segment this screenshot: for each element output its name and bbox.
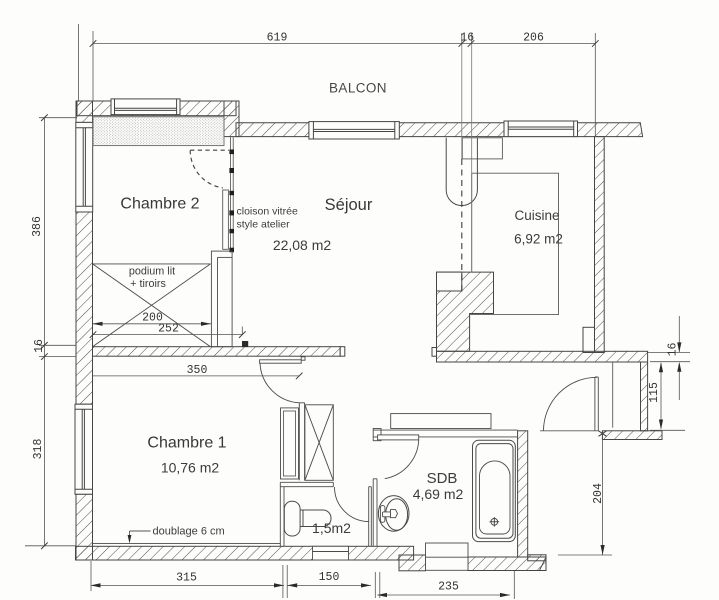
svg-text:619: 619 [267, 32, 288, 45]
svg-text:SDB: SDB [427, 470, 458, 487]
svg-text:cloison vitrée: cloison vitrée [237, 206, 298, 218]
svg-text:1,5m2: 1,5m2 [312, 520, 351, 536]
svg-text:podium lit: podium lit [129, 266, 175, 278]
svg-text:206: 206 [523, 32, 544, 45]
svg-text:318: 318 [32, 439, 45, 460]
svg-text:Cuisine: Cuisine [514, 208, 559, 223]
svg-text:6,92 m2: 6,92 m2 [514, 232, 563, 247]
svg-text:315: 315 [176, 572, 197, 585]
svg-text:4,69 m2: 4,69 m2 [413, 486, 464, 502]
svg-text:16: 16 [33, 339, 46, 353]
svg-text:350: 350 [187, 364, 208, 377]
svg-text:235: 235 [438, 581, 459, 594]
svg-text:150: 150 [319, 571, 340, 584]
svg-text:+ tiroirs: + tiroirs [130, 278, 166, 290]
svg-text:252: 252 [158, 323, 179, 336]
svg-text:16: 16 [460, 32, 474, 45]
svg-text:22,08 m2: 22,08 m2 [273, 237, 332, 253]
svg-text:10,76 m2: 10,76 m2 [161, 460, 220, 476]
svg-text:115: 115 [648, 382, 661, 403]
svg-text:386: 386 [31, 216, 44, 237]
svg-text:Chambre 2: Chambre 2 [120, 196, 199, 213]
svg-text:16: 16 [667, 343, 680, 357]
svg-text:204: 204 [592, 483, 605, 504]
svg-text:style atelier: style atelier [237, 219, 291, 231]
svg-text:BALCON: BALCON [329, 81, 387, 96]
svg-text:Chambre 1: Chambre 1 [147, 435, 226, 452]
svg-text:Séjour: Séjour [325, 196, 373, 214]
svg-text:doublage 6 cm: doublage 6 cm [153, 526, 225, 538]
